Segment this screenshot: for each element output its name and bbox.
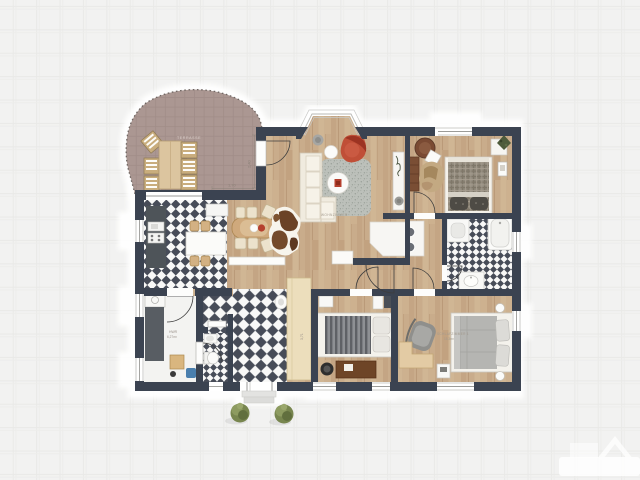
svg-text:HWR: HWR xyxy=(169,330,178,334)
svg-text:SCHLAFZIMMER 1: SCHLAFZIMMER 1 xyxy=(437,332,469,336)
svg-text:6,27m²: 6,27m² xyxy=(167,335,177,339)
svg-text:1,70: 1,70 xyxy=(228,183,237,188)
svg-text:WOHNZIMMER: WOHNZIMMER xyxy=(321,213,348,217)
svg-text:3,71: 3,71 xyxy=(300,333,304,340)
svg-text:2,40: 2,40 xyxy=(247,159,252,168)
svg-text:TERRASSE: TERRASSE xyxy=(177,136,201,140)
svg-text:15,3m²: 15,3m² xyxy=(444,337,454,341)
